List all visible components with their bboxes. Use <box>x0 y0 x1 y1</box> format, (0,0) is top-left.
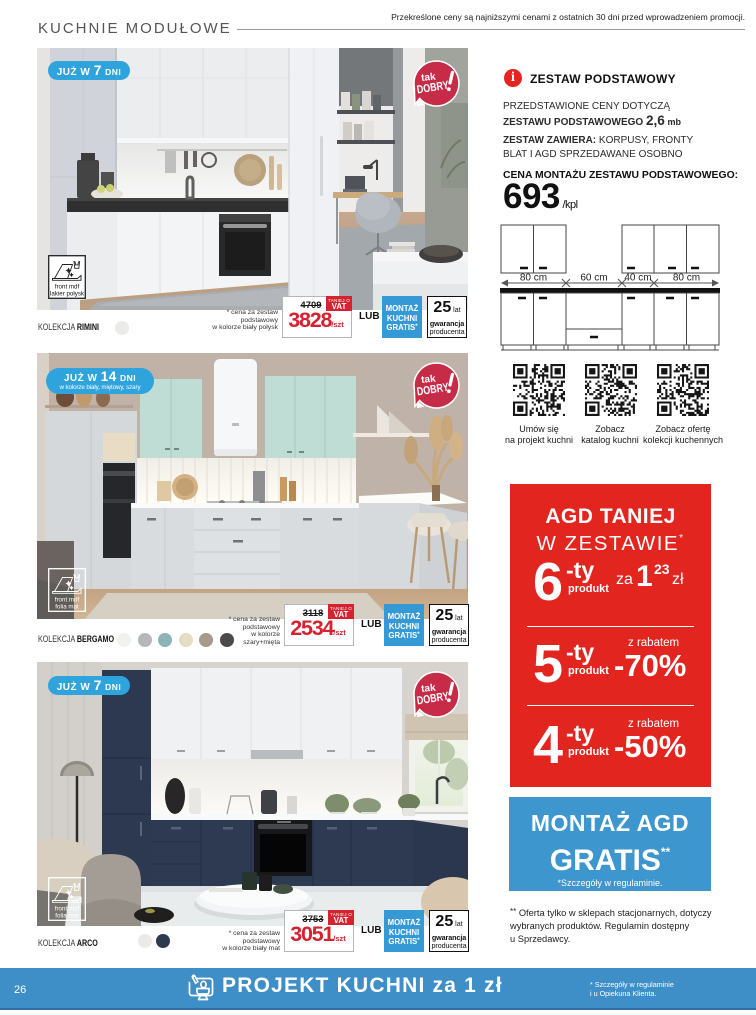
svg-text:front mdf: front mdf <box>55 284 80 291</box>
svg-text:folia mat: folia mat <box>55 913 79 920</box>
svg-text:80 cm: 80 cm <box>673 273 700 284</box>
svg-text:40 cm: 40 cm <box>624 273 651 284</box>
svg-text:front mdf: front mdf <box>55 597 80 604</box>
svg-text:60 cm: 60 cm <box>580 273 607 284</box>
svg-text:lakier połysk: lakier połysk <box>50 291 85 298</box>
svg-text:folia mat: folia mat <box>55 604 79 611</box>
svg-text:80 cm: 80 cm <box>520 273 547 284</box>
svg-text:front mdf: front mdf <box>55 906 80 913</box>
